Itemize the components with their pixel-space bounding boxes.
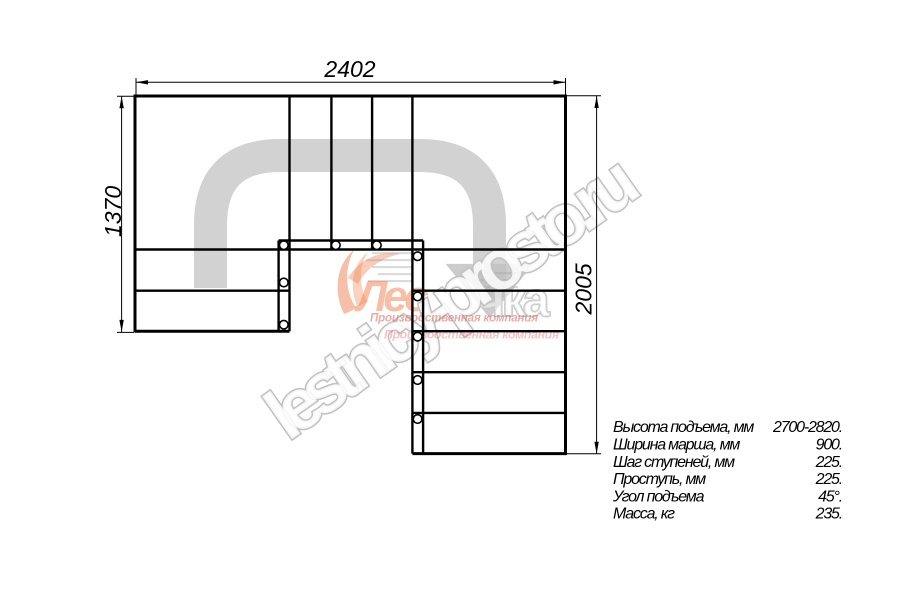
svg-text:45°.: 45°. — [818, 488, 842, 505]
svg-text:Угол подъема: Угол подъема — [612, 488, 705, 505]
svg-text:2005: 2005 — [571, 263, 597, 315]
svg-text:2700-2820.: 2700-2820. — [772, 419, 842, 436]
svg-text:1370: 1370 — [100, 186, 126, 237]
svg-text:Проступь, мм: Проступь, мм — [613, 471, 706, 488]
svg-text:Масса, кг: Масса, кг — [613, 506, 675, 523]
svg-text:Производственная компания: Производственная компания — [370, 312, 538, 325]
svg-text:235.: 235. — [815, 506, 842, 523]
svg-text:Шаг ступеней, мм: Шаг ступеней, мм — [613, 454, 735, 471]
svg-text:900.: 900. — [816, 437, 842, 454]
svg-text:225.: 225. — [815, 454, 842, 471]
svg-text:225.: 225. — [815, 471, 842, 488]
svg-text:Производственная компания: Производственная компания — [384, 328, 560, 342]
svg-text:2402: 2402 — [323, 56, 375, 82]
svg-text:Высота подъема, мм: Высота подъема, мм — [613, 419, 754, 436]
svg-text:Ширина марша, мм: Ширина марша, мм — [613, 437, 740, 454]
